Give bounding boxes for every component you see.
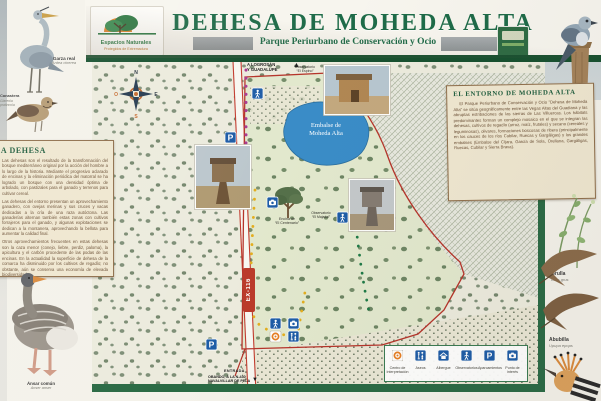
la-dehesa-panel: LA DEHESA Las dehesas son el resultado d… xyxy=(0,140,114,277)
viewpoint-camera-icon-2 xyxy=(288,318,299,329)
la-dehesa-p1: Las dehesas son el resultado de la trans… xyxy=(2,158,108,196)
svg-text:N: N xyxy=(134,70,138,76)
observatory-hiker-icon-3 xyxy=(270,318,281,329)
sign-title: DEHESA DE MOHEDA ALTA xyxy=(168,9,538,37)
reservoir-label: Embalse de Moheda Alta xyxy=(288,122,364,137)
point-of-interest-icon xyxy=(507,350,518,361)
entrance-label: ENTRADA xyxy=(224,369,245,373)
pratincole-caption: Canastera Glareola pratincola xyxy=(0,94,22,107)
logo-text-1: Espacios Naturales xyxy=(93,40,159,46)
goose-illustration xyxy=(0,264,96,394)
observatory-espino-label: Observatorio “El Espino” xyxy=(286,65,324,73)
sign-subtitle: Parque Periurbano de Conservación y Ocio xyxy=(253,37,443,48)
road-destination-south: OBANDO, A LA N-430 NAVALVILLAR DE PELA xyxy=(208,375,252,384)
restrooms-icon xyxy=(288,331,299,342)
espacios-naturales-logo: Espacios Naturales Protegidos de Extrema… xyxy=(90,6,164,56)
hoopoe-illustration xyxy=(543,351,601,401)
la-dehesa-title: LA DEHESA xyxy=(0,146,108,155)
parking-icon xyxy=(484,350,495,361)
parking-icon-2 xyxy=(206,339,217,350)
singular-oak-label: Encina de “El Centenario” xyxy=(268,217,306,225)
hoopoe-caption: Abubilla Upupa epops xyxy=(549,338,593,349)
photo-inset-tower-1 xyxy=(195,145,252,210)
legend-item: Aseos xyxy=(409,348,432,371)
entorno-title: EL ENTORNO DE MOHEDA ALTA xyxy=(453,89,587,98)
cranes-illustration xyxy=(537,238,601,344)
photo-inset-tower-2 xyxy=(349,179,396,232)
logo-emblem-icon xyxy=(92,8,162,38)
interpretation-center-icon xyxy=(270,331,281,342)
interpretation-center-icon xyxy=(392,350,403,361)
junta-extremadura-logo xyxy=(497,26,529,57)
legend-item: Observatorios xyxy=(455,348,478,371)
subtitle-bar-left xyxy=(193,37,253,50)
goose-caption: Ánsar común Anser anser xyxy=(16,381,66,391)
park-information-sign: Espacios Naturales Protegidos de Extrema… xyxy=(0,0,601,401)
road-destination-north: A LOGROSÁN Y GUADALUPE xyxy=(247,63,291,73)
legend-item: Albergue xyxy=(432,348,455,371)
restrooms-icon xyxy=(415,350,426,361)
svg-text:O: O xyxy=(114,92,118,98)
parking-icon xyxy=(225,132,236,143)
header-divider-bar xyxy=(86,55,601,62)
map-frame-bottom xyxy=(92,384,545,392)
pratincole-illustration xyxy=(0,80,70,140)
entorno-p1: El Parque Periurbano de Conservación y O… xyxy=(453,99,588,151)
road-name-badge: EX-116 xyxy=(243,268,255,312)
photo-inset-observatory-espino xyxy=(324,65,391,116)
legend-item: Aparcamientos xyxy=(478,348,501,371)
la-dehesa-p2: Las dehesas del entorno presentan un apr… xyxy=(2,199,108,237)
viewpoint-camera-icon xyxy=(267,197,278,208)
legend-item: Centro de Interpretación xyxy=(386,348,409,375)
observatory-hiker-icon-2 xyxy=(337,212,348,223)
observatories-icon xyxy=(461,350,472,361)
entorno-panel: EL ENTORNO DE MOHEDA ALTA El Parque Peri… xyxy=(446,83,596,202)
observatory-majadal-label: Observatorio “El Majadal” xyxy=(306,211,336,219)
legend-item: Punto de interés xyxy=(501,348,524,375)
hostel-icon xyxy=(438,350,449,361)
map-legend: Centro de Interpretación Aseos Albergue … xyxy=(384,345,528,382)
south-arrow-icon: ▼ xyxy=(252,377,258,384)
heron-caption: Garza real Ardea cinerea xyxy=(42,56,86,66)
observatory-hiker-icon xyxy=(252,88,263,99)
logo-text-2: Protegidos de Extremadura xyxy=(93,47,159,51)
